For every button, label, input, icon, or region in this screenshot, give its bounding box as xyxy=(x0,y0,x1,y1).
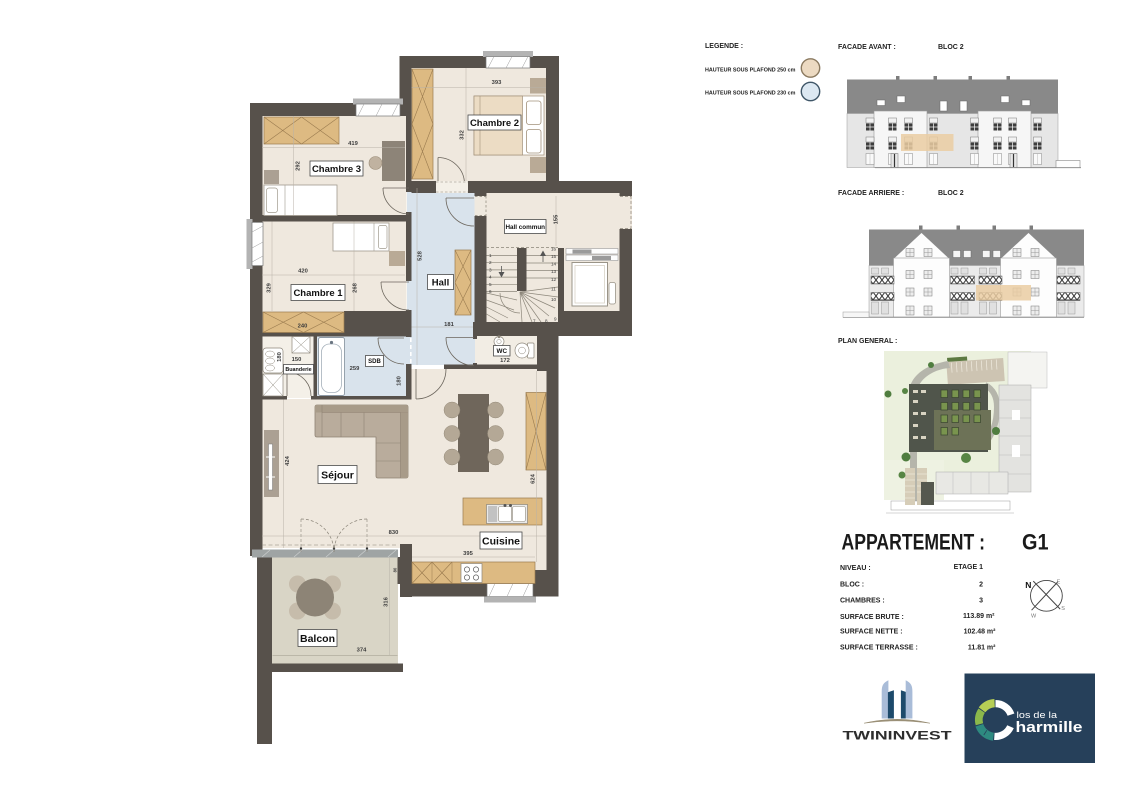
svg-text:624: 624 xyxy=(531,473,537,483)
svg-text:329: 329 xyxy=(267,282,273,292)
svg-text:Séjour: Séjour xyxy=(321,469,354,481)
svg-text:NIVEAU :: NIVEAU : xyxy=(840,565,871,572)
svg-text:Buanderie: Buanderie xyxy=(285,367,311,373)
svg-text:Balcon: Balcon xyxy=(300,633,335,645)
svg-text:LEGENDE :: LEGENDE : xyxy=(705,43,743,50)
svg-text:Chambre 2: Chambre 2 xyxy=(470,118,519,129)
svg-text:CHAMBRES :: CHAMBRES : xyxy=(840,598,885,605)
svg-text:528: 528 xyxy=(418,250,424,260)
svg-text:419: 419 xyxy=(348,141,358,147)
svg-text:ETAGE 1: ETAGE 1 xyxy=(954,564,984,571)
svg-text:Cuisine: Cuisine xyxy=(482,535,520,547)
svg-text:Hall commun: Hall commun xyxy=(505,224,545,231)
svg-text:16: 16 xyxy=(551,247,557,252)
svg-text:5: 5 xyxy=(489,282,492,287)
svg-text:395: 395 xyxy=(463,551,473,557)
svg-text:4: 4 xyxy=(489,275,492,280)
svg-text:1: 1 xyxy=(489,253,492,258)
svg-text:102.48 m²: 102.48 m² xyxy=(964,629,997,636)
svg-text:10: 10 xyxy=(551,297,557,302)
svg-text:268: 268 xyxy=(353,282,359,292)
svg-text:9: 9 xyxy=(554,317,557,322)
svg-text:113.89 m²: 113.89 m² xyxy=(963,613,995,620)
svg-text:3: 3 xyxy=(979,598,983,605)
svg-text:N: N xyxy=(1025,580,1031,590)
svg-text:Hall: Hall xyxy=(432,277,449,288)
svg-text:14: 14 xyxy=(551,262,557,267)
svg-text:424: 424 xyxy=(285,455,291,465)
svg-text:11: 11 xyxy=(551,287,556,292)
svg-text:BLOC :: BLOC : xyxy=(840,582,864,589)
svg-text:E: E xyxy=(1057,580,1061,586)
svg-text:80: 80 xyxy=(393,567,398,572)
svg-text:13: 13 xyxy=(551,269,557,274)
svg-text:G1: G1 xyxy=(1022,530,1049,555)
svg-text:BLOC 2: BLOC 2 xyxy=(938,44,964,51)
svg-text:SURFACE BRUTE :: SURFACE BRUTE : xyxy=(840,614,904,621)
svg-text:830: 830 xyxy=(389,530,399,536)
svg-text:SURFACE TERRASSE :: SURFACE TERRASSE : xyxy=(840,645,918,652)
svg-text:PLAN GENERAL :: PLAN GENERAL : xyxy=(838,338,897,345)
svg-text:180: 180 xyxy=(397,376,403,386)
svg-text:S: S xyxy=(1061,606,1065,612)
svg-text:155: 155 xyxy=(554,214,560,224)
svg-text:172: 172 xyxy=(500,358,510,364)
svg-text:FACADE ARRIERE :: FACADE ARRIERE : xyxy=(838,190,904,197)
svg-text:2: 2 xyxy=(489,260,492,265)
svg-text:150: 150 xyxy=(292,357,302,363)
svg-text:12: 12 xyxy=(551,277,557,282)
svg-text:2: 2 xyxy=(979,582,983,589)
svg-text:6: 6 xyxy=(489,289,492,294)
svg-text:SURFACE NETTE :: SURFACE NETTE : xyxy=(840,629,903,636)
svg-text:SDB: SDB xyxy=(368,359,381,365)
svg-text:7: 7 xyxy=(533,319,536,324)
svg-text:FACADE AVANT :: FACADE AVANT : xyxy=(838,44,896,51)
svg-text:3: 3 xyxy=(489,267,492,272)
svg-text:11.81 m²: 11.81 m² xyxy=(968,645,996,652)
svg-text:harmille: harmille xyxy=(1016,720,1083,736)
svg-text:W: W xyxy=(1031,614,1037,620)
svg-text:374: 374 xyxy=(357,648,367,654)
svg-text:HAUTEUR SOUS PLAFOND 230 cm: HAUTEUR SOUS PLAFOND 230 cm xyxy=(705,91,796,97)
svg-text:HAUTEUR SOUS PLAFOND 250 cm: HAUTEUR SOUS PLAFOND 250 cm xyxy=(705,68,796,74)
svg-text:316: 316 xyxy=(384,596,390,606)
svg-text:BLOC 2: BLOC 2 xyxy=(938,190,964,197)
svg-text:15: 15 xyxy=(551,254,557,259)
svg-text:292: 292 xyxy=(296,161,302,171)
svg-text:181: 181 xyxy=(444,322,454,328)
svg-text:240: 240 xyxy=(298,324,308,330)
svg-text:APPARTEMENT :: APPARTEMENT : xyxy=(842,530,986,555)
svg-text:8: 8 xyxy=(545,319,548,324)
svg-text:393: 393 xyxy=(492,80,502,86)
svg-text:WC: WC xyxy=(497,348,508,355)
svg-text:420: 420 xyxy=(298,269,308,275)
svg-text:332: 332 xyxy=(460,130,466,140)
svg-text:259: 259 xyxy=(350,366,360,372)
svg-text:TWININVEST: TWININVEST xyxy=(843,731,952,743)
svg-text:Chambre 3: Chambre 3 xyxy=(312,164,361,175)
svg-text:Chambre 1: Chambre 1 xyxy=(293,288,343,299)
svg-text:180: 180 xyxy=(277,352,283,362)
